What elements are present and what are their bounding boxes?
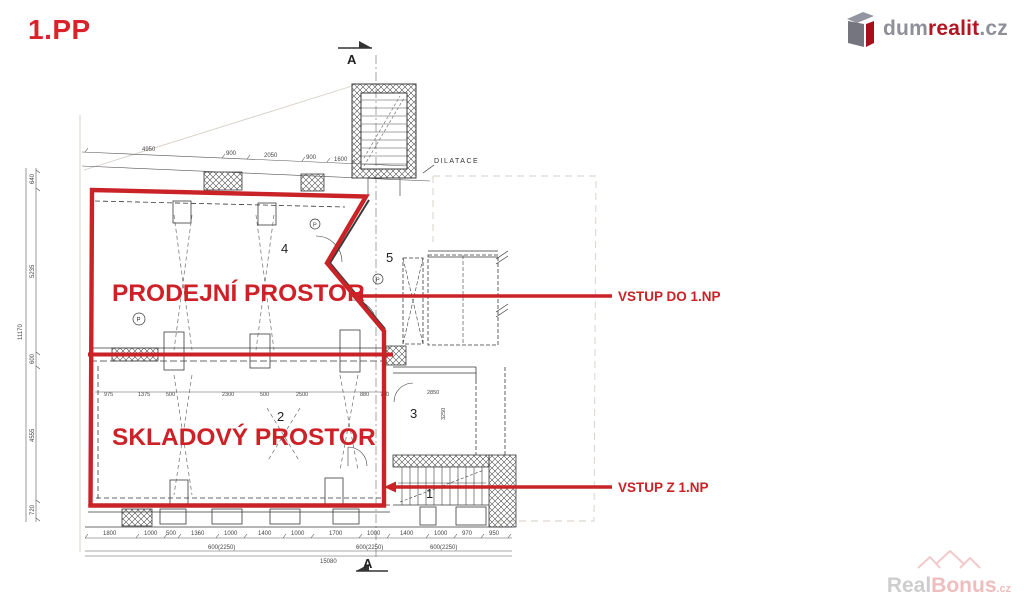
dim-bottom-6: 1000 — [291, 531, 305, 537]
dilatace-label: DILATACE — [434, 158, 479, 165]
floor-plan-drawing: A A DILATACE — [0, 0, 1024, 596]
realbonus-text: RealBonus.cz — [880, 575, 1018, 596]
dim-mid-0: 975 — [104, 392, 113, 398]
dim-bottom-sub-0: 600(2250) — [208, 545, 235, 551]
dim-bottom-sub-1: 600(2250) — [356, 545, 383, 551]
realbonus-watermark: RealBonus.cz — [880, 548, 1018, 596]
wm-part-cz: .cz — [997, 583, 1012, 595]
dim-mid-4: 500 — [260, 392, 269, 398]
floorplan-page: 1.PP dumrealit.cz A — [0, 0, 1024, 596]
dim-room3-0: 2850 — [427, 390, 439, 396]
dim-bottom-8: 1000 — [367, 531, 381, 537]
dilatace-note: DILATACE — [423, 158, 479, 173]
dim-bottom-5: 1400 — [258, 531, 272, 537]
faint-scan-lines — [80, 86, 596, 552]
dim-bottom-2: 500 — [166, 531, 177, 537]
dim-bottom-sub-2: 600(2250) — [430, 545, 457, 551]
room-number-3: 3 — [410, 406, 417, 421]
room-number-5: 5 — [386, 250, 393, 265]
wall-linework — [85, 172, 516, 527]
dim-bottom-12: 950 — [489, 531, 500, 537]
dim-mid-5: 2500 — [296, 392, 308, 398]
dim-left-2: 600 — [30, 353, 36, 364]
dim-bottom-total: 15080 — [320, 559, 337, 565]
dim-mid-2: 500 — [166, 392, 175, 398]
dim-mid-6: 880 — [360, 392, 369, 398]
dim-top-2: 2050 — [264, 153, 278, 159]
dim-mid-3: 2300 — [222, 392, 234, 398]
p-symbol-2: P — [313, 223, 317, 229]
dim-bottom-7: 1700 — [329, 531, 343, 537]
dim-left-3: 4555 — [30, 428, 36, 442]
dim-left-0: 640 — [30, 173, 36, 184]
section-letter-bottom: A — [363, 556, 373, 571]
sales-space-label: PRODEJNÍ PROSTOR — [112, 279, 365, 307]
dim-bottom-1: 1000 — [144, 531, 158, 537]
dim-bottom-9: 1400 — [400, 531, 414, 537]
dim-bottom-11: 970 — [462, 531, 473, 537]
dim-top-4: 1600 — [334, 157, 348, 163]
dim-room3-1: 3250 — [441, 408, 447, 420]
wm-part-real: Real — [887, 574, 931, 597]
dim-bottom-0: 1800 — [103, 531, 117, 537]
dim-left-4: 720 — [30, 504, 36, 515]
wm-part-bonus: Bonus — [931, 574, 996, 597]
section-marker-bottom: A — [356, 556, 388, 571]
dim-bottom-10: 1000 — [434, 531, 448, 537]
dim-mid-1: 1375 — [138, 392, 150, 398]
section-letter-top: A — [347, 52, 357, 67]
dim-top-1: 900 — [226, 151, 237, 157]
p-symbol-3: P — [376, 278, 380, 284]
dim-top-3: 900 — [306, 155, 317, 161]
room-number-2: 2 — [277, 409, 284, 424]
dim-bottom-3: 1360 — [191, 531, 205, 537]
entrance-from-label: VSTUP Z 1.NP — [618, 480, 709, 495]
section-marker-top: A — [338, 41, 372, 67]
p-symbol-1: P — [137, 318, 141, 324]
houses-icon — [890, 548, 1008, 570]
entrance-to-leader: VSTUP DO 1.NP — [351, 289, 721, 304]
dimension-lines — [26, 148, 512, 556]
room-number-4: 4 — [281, 241, 288, 256]
entrance-to-label: VSTUP DO 1.NP — [618, 289, 721, 304]
dim-left-1: 5235 — [30, 264, 36, 278]
dim-left-total: 11170 — [18, 324, 24, 340]
dim-bottom-4: 1000 — [224, 531, 238, 537]
storage-space-label: SKLADOVÝ PROSTOR — [112, 423, 376, 451]
dim-top-0: 4950 — [142, 147, 156, 153]
